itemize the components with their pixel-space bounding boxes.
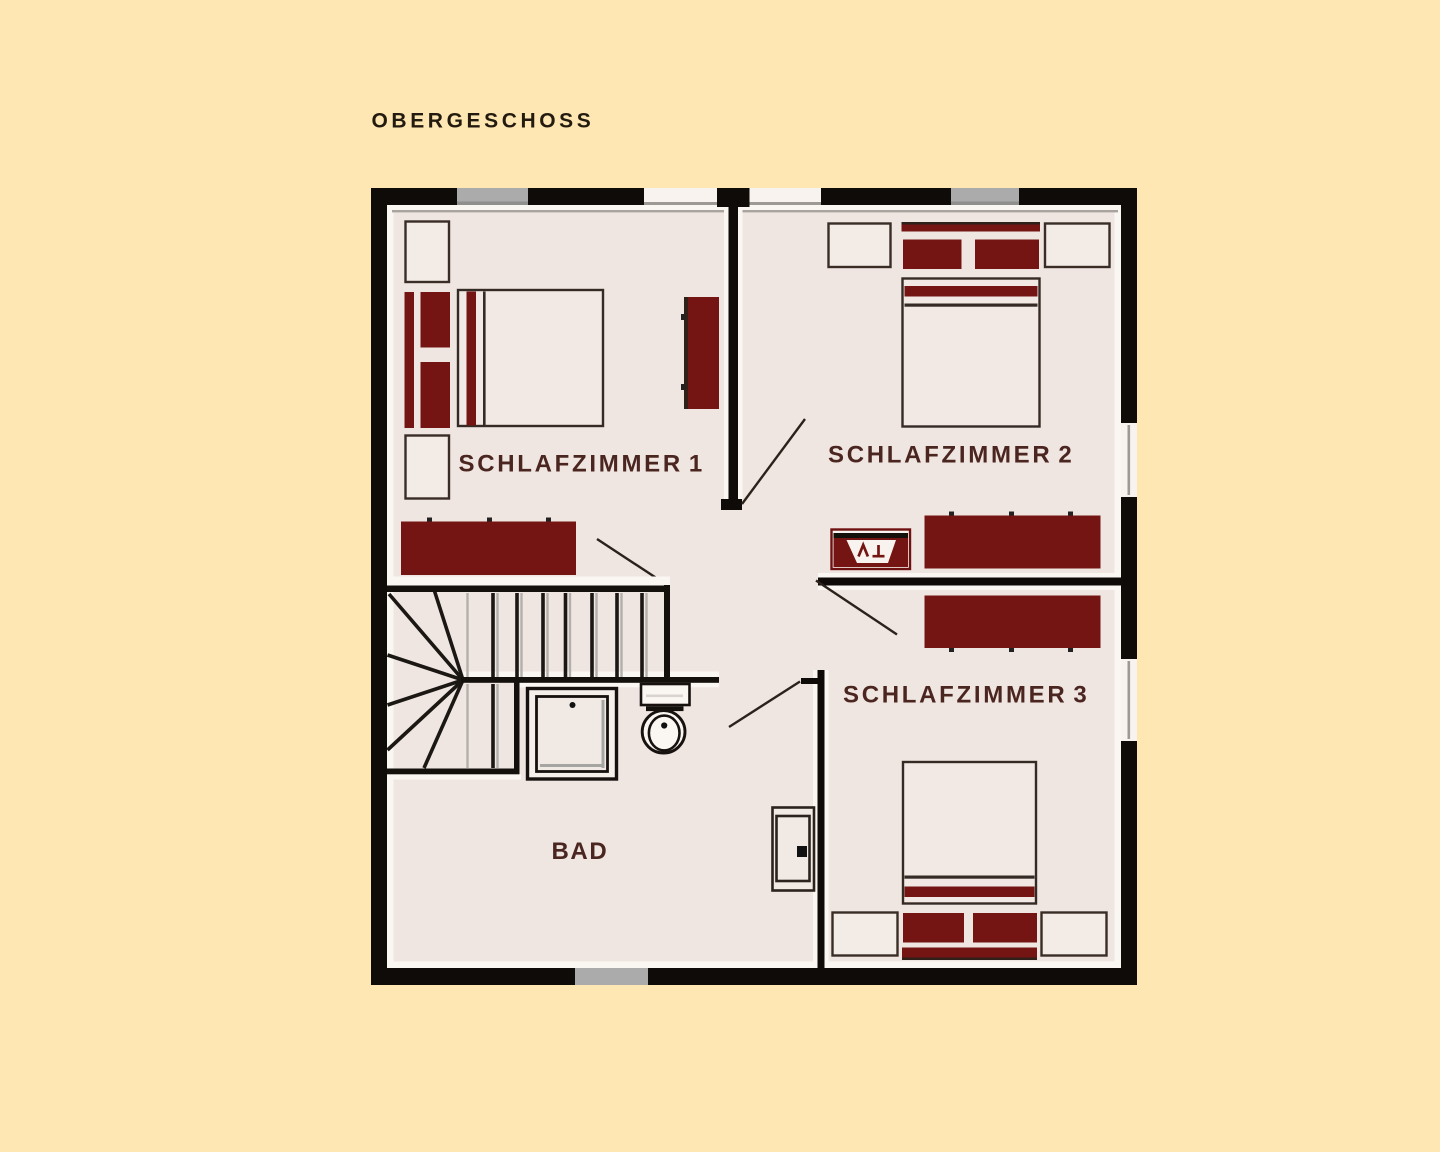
svg-text:SCHLAFZIMMER2: SCHLAFZIMMER2 [828, 442, 1074, 469]
svg-text:BAD: BAD [552, 838, 609, 865]
svg-text:SCHLAFZIMMER3: SCHLAFZIMMER3 [843, 682, 1089, 709]
svg-text:OBERGESCHOSS: OBERGESCHOSS [372, 110, 595, 133]
svg-text:SCHLAFZIMMER1: SCHLAFZIMMER1 [459, 451, 705, 478]
